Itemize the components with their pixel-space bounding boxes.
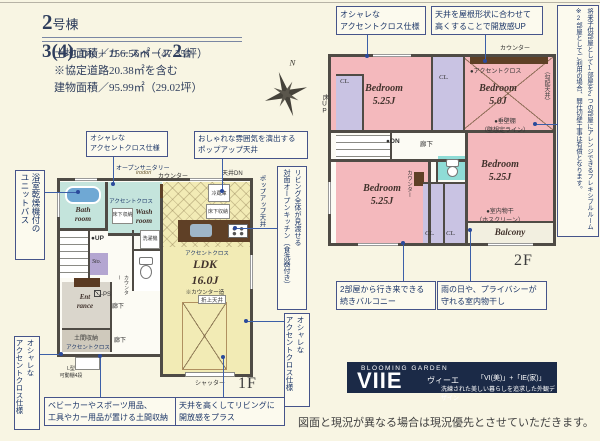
room-name: Bedroom xyxy=(365,83,403,94)
leader-line xyxy=(470,230,471,283)
leader-dot xyxy=(365,54,369,58)
kitchen-sink xyxy=(190,224,212,237)
stairs-on-label: ●ON xyxy=(386,138,400,145)
window xyxy=(190,178,222,181)
indoor-drying-label: ●室内物干 （ホスクリーン） xyxy=(474,206,526,224)
leader-dot xyxy=(483,59,487,63)
callout-unit-bath: 浴室乾燥機付の ユニットバス xyxy=(15,170,45,260)
branding-box: BLOOMING GARDEN VIIE ヴィーエ 「VI(美)」+「IE(家)… xyxy=(347,362,557,393)
plan-cars: 2 xyxy=(173,41,183,62)
doma-label: 土間収納 xyxy=(64,333,108,342)
leader-dot xyxy=(244,319,248,323)
plan-main: 3 xyxy=(42,41,52,62)
stairs-1f xyxy=(60,230,88,278)
wall xyxy=(105,182,108,228)
leader-dot xyxy=(221,355,225,359)
brand-logo: VIIE xyxy=(357,368,403,394)
l-shelf-label: L型 可動棚4段 xyxy=(54,365,88,379)
window xyxy=(75,178,97,181)
room-name: Bedroom xyxy=(481,159,519,170)
room-size: 5.25J xyxy=(371,196,394,207)
accent-cross-wash-label: アクセントクロス xyxy=(106,197,156,205)
wash-label: Wash room xyxy=(126,207,162,226)
wall xyxy=(465,133,468,243)
window xyxy=(358,243,398,246)
bathtub xyxy=(65,186,101,204)
callout-popup-ceiling: おしゃれな雰囲気を演出する ポップアップ天井 xyxy=(194,131,308,159)
storage-label: Sto. xyxy=(92,259,101,265)
room-size: 5.25J xyxy=(489,172,512,183)
top-rule xyxy=(0,2,600,3)
wall xyxy=(62,328,110,330)
bedroom-2-label: Bedroom5.0J xyxy=(458,82,538,108)
callout-accent-1f-left: オシャレな アクセントクロス仕様 xyxy=(14,336,40,430)
room-size: 5.25J xyxy=(373,96,396,107)
road-note: ※協定道路20.38㎡を含む xyxy=(54,63,242,80)
leader-dot xyxy=(76,190,80,194)
callout-accent-2f: オシャレな アクセントクロス仕様 xyxy=(336,6,426,35)
leader-line xyxy=(247,321,284,322)
plan-ldk: LDK＋カースペース xyxy=(74,49,173,60)
callout-high-ceiling: 天井を高くしてリビングに 開放感をプラス xyxy=(175,397,285,426)
closet-label: CL. xyxy=(439,74,449,81)
plan-type: 3(4)LDK＋カースペース2台 xyxy=(42,41,193,63)
accent-cross-2f-label: ●アクセントクロス xyxy=(470,66,521,75)
wall xyxy=(336,74,364,76)
stairs-up-label: ●UP xyxy=(91,235,104,242)
ceiling-dn-label: 天井DN xyxy=(222,168,243,177)
shutter-label: シャッター xyxy=(186,378,234,387)
floor-tag-1f: 1F xyxy=(238,375,257,393)
header-block: 2号棟 3(4)LDK＋カースペース2台 土地面積／156.56㎡（47.35坪… xyxy=(42,10,242,97)
leader-line xyxy=(113,155,114,184)
accent-cross-doma-label: アクセントクロス xyxy=(62,343,114,351)
header-divider-1 xyxy=(42,37,242,38)
toilet-bowl-2f xyxy=(447,166,458,177)
toilet-fixture-1f xyxy=(139,257,153,265)
accent-cross-ldk-label: アクセントクロス xyxy=(185,249,229,257)
wall xyxy=(443,184,445,243)
bedroom-4-label: Bedroom5.25J xyxy=(460,158,540,184)
stairs-2f xyxy=(336,135,390,159)
plan-cars-unit: 台 xyxy=(182,49,193,60)
wall xyxy=(88,230,90,278)
room-size: 5.0J xyxy=(489,96,507,107)
building-number: 2号棟 xyxy=(42,10,242,35)
callout-doma-storage: ベビーカーやスポーツ用品、 工具やカー用品が置ける土間収納 xyxy=(44,397,180,426)
entrance-label: Ent rance xyxy=(66,293,104,311)
counter-label: カウンター xyxy=(158,171,188,180)
counter-2f xyxy=(470,57,548,64)
ceiling-x-mark xyxy=(183,303,226,369)
building-number-digit: 2 xyxy=(42,10,53,34)
plan-paren: (4) xyxy=(52,41,74,62)
floor-plan-2f: Bedroom5.25J Bedroom5.0J Bedroom5.25J Be… xyxy=(318,42,562,258)
compass-star-icon: N xyxy=(256,58,316,122)
counter-note-label: ※カウンター造 xyxy=(184,288,226,296)
hallway-2-label: 廊下 xyxy=(114,335,126,344)
leader-dot xyxy=(401,241,405,245)
building-area: 建物面積／95.99㎡（29.02坪） xyxy=(54,80,242,97)
wall xyxy=(60,228,108,231)
hanging-wall-label: ●垂壁棚 （壁想定ライン） xyxy=(480,116,530,134)
brand-tagline: 洗練された美しい暮らしを追求した外観デザイン xyxy=(441,384,557,402)
leader-line xyxy=(535,124,558,125)
washer-label: 洗濯機 xyxy=(140,235,160,242)
floor-storage-2-label: 床下収納 xyxy=(206,208,230,215)
shutter-strip xyxy=(185,372,235,377)
sanitary-brand-label: irodori xyxy=(136,170,151,176)
callout-roof-ceiling: 天井を屋根形状に合わせて 高くすることで開放感UP xyxy=(431,6,543,35)
leader-line xyxy=(236,228,277,229)
entrance-door xyxy=(74,278,100,287)
leader-dot xyxy=(233,226,237,230)
window xyxy=(373,54,411,57)
wall xyxy=(431,57,433,130)
room-name: Bedroom xyxy=(479,83,517,94)
callout-twin-balcony: 2部屋から行き来できる 続きバルコニー xyxy=(336,281,436,310)
callout-accent-1f-right: オシャレな アクセントクロス仕様 xyxy=(284,313,310,407)
room-name: Bedroom xyxy=(363,183,401,194)
counter-v-label: カウンター xyxy=(116,275,130,299)
counter-side-label: カウンター xyxy=(405,170,413,204)
balcony-label: Balcony xyxy=(475,227,545,238)
folded-ceiling-label: 折上天井 xyxy=(198,296,226,304)
leader-dot xyxy=(220,189,224,193)
leader-line xyxy=(40,192,78,193)
sloped-ceiling-label: （勾配天井） xyxy=(542,68,551,120)
floor-tag-2f: 2F xyxy=(514,252,533,270)
hallway-1-label: 廊下 xyxy=(112,301,124,310)
wall xyxy=(134,249,160,251)
room-size: 16.0J xyxy=(192,273,219,287)
room-name: LDK xyxy=(193,257,217,271)
closet-label: CL. xyxy=(340,78,350,85)
leader-line xyxy=(403,243,404,283)
counter-top-label: カウンター xyxy=(500,43,530,52)
building-number-suffix: 号棟 xyxy=(53,17,79,32)
ldk-label: LDK16.0J xyxy=(175,257,235,288)
leader-dot xyxy=(98,354,102,358)
floor-up-label: 床UP xyxy=(319,94,329,130)
callout-open-kitchen: リビング全体が見渡せる 対面オープンキッチン（食洗器付き） xyxy=(277,166,307,310)
toilet-bowl-1f xyxy=(140,265,152,279)
svg-text:N: N xyxy=(288,58,296,68)
leader-line xyxy=(222,159,223,191)
leader-line xyxy=(100,356,101,397)
living-ceiling-box xyxy=(182,302,227,370)
compass: N xyxy=(256,58,316,122)
hallway-2f-label: 廊下 xyxy=(420,138,433,148)
floor-plan-1f: オープンサニタリー irodori カウンター 天井DN ポップアップ天井 アク… xyxy=(50,135,306,395)
closet-label: CL. xyxy=(446,230,456,237)
window xyxy=(57,193,60,217)
leader-dot xyxy=(533,122,537,126)
disclaimer-text: 図面と現況が異なる場合は現況優先とさせていただきます。 xyxy=(298,414,594,430)
brand-formula: 「VI(美)」+「IE(家)」 xyxy=(477,373,546,383)
leader-dot xyxy=(468,228,472,232)
leader-dot xyxy=(59,352,63,356)
bath-label: Bath room xyxy=(62,205,104,224)
callout-indoor-drying: 雨の日や、プライバシーが 守れる室内物干し xyxy=(437,281,547,310)
bedroom-1-label: Bedroom5.25J xyxy=(344,82,424,108)
window xyxy=(250,255,253,289)
wall xyxy=(436,159,438,182)
wall xyxy=(390,133,392,159)
window xyxy=(328,182,331,214)
fridge-label: 冷蔵庫 xyxy=(208,190,230,197)
window xyxy=(488,243,533,246)
closet-label: CL. xyxy=(425,230,435,237)
leader-line xyxy=(223,357,224,397)
leader-dot xyxy=(111,182,115,186)
ps-text: PS xyxy=(103,292,111,298)
callout-flex-room: 将来子供部屋として1部屋を2つの部屋にアレンジできるフレキシブルルーム ※2部屋… xyxy=(557,5,599,237)
flyer-canvas: 2号棟 3(4)LDK＋カースペース2台 土地面積／156.56㎡（47.35坪… xyxy=(0,0,600,441)
stove xyxy=(228,224,248,238)
callout-accent-1f-top: オシャレな アクセントクロス仕様 xyxy=(86,131,168,157)
wall xyxy=(132,230,134,291)
popup-ceiling-v-label: ポップアップ天井 xyxy=(256,175,266,255)
